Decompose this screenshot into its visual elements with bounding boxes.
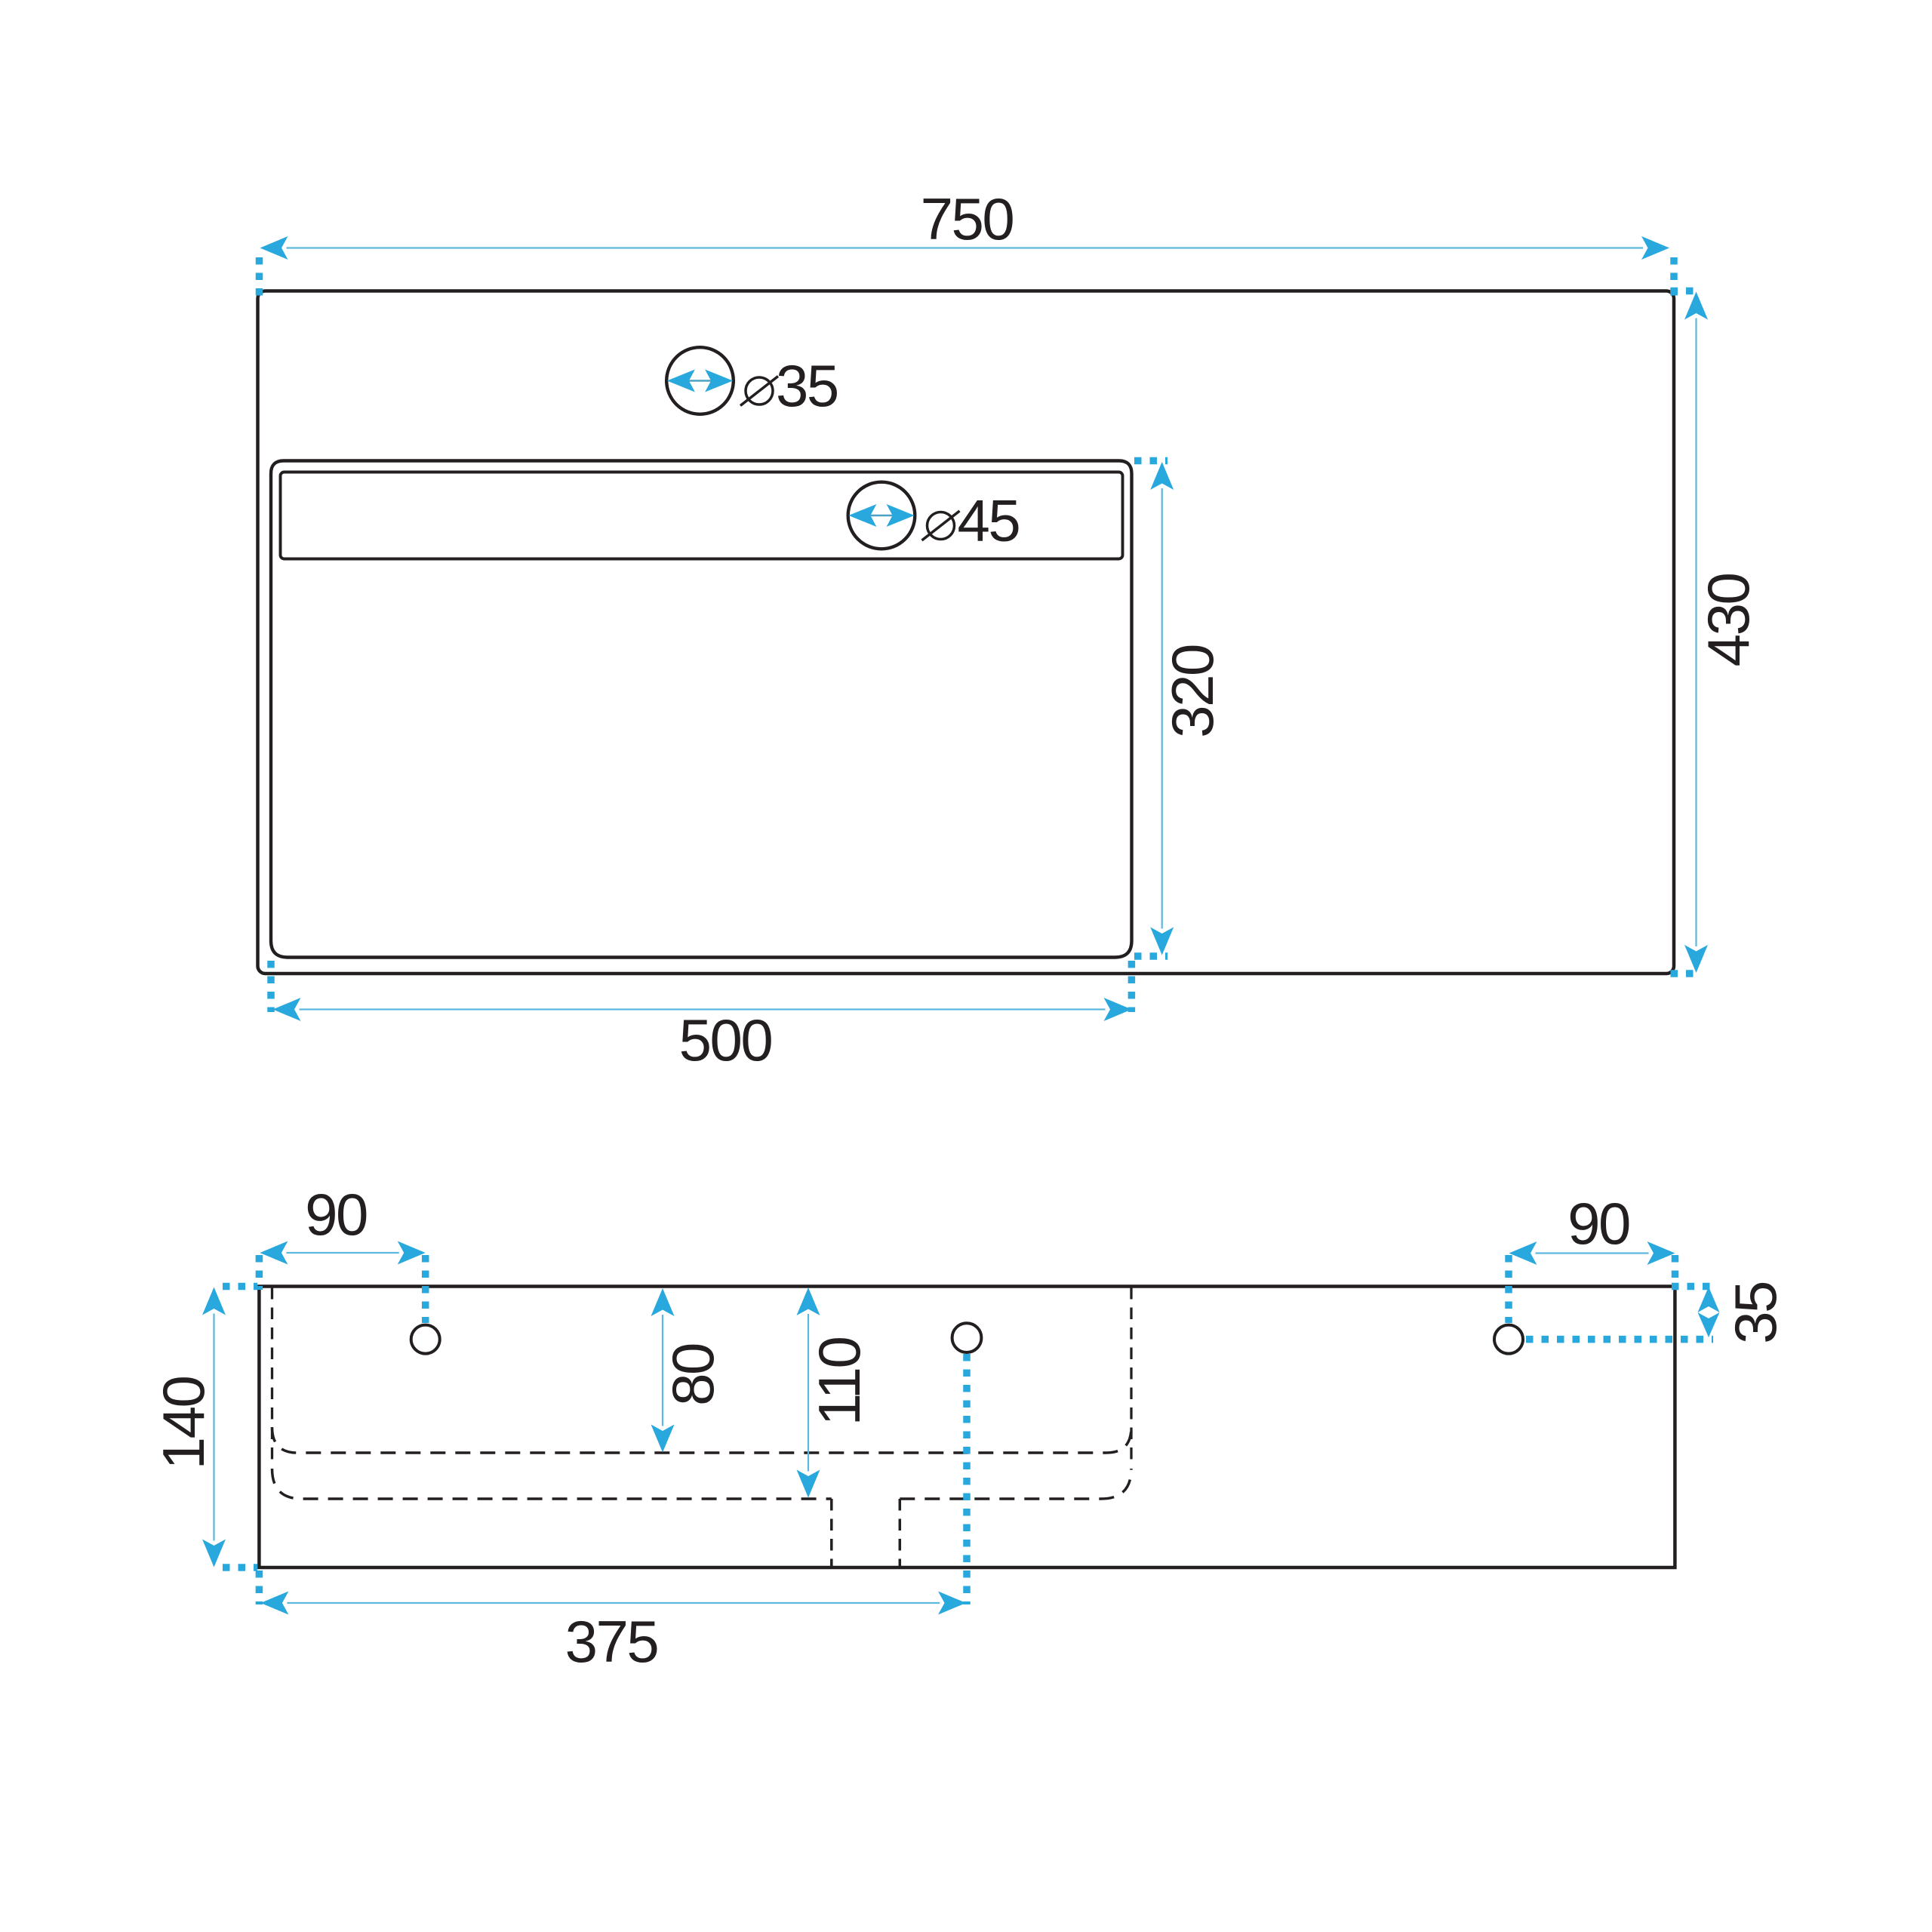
svg-text:90: 90 bbox=[305, 1181, 367, 1247]
svg-text:90: 90 bbox=[1567, 1190, 1629, 1257]
svg-text:45: 45 bbox=[958, 488, 1020, 554]
svg-text:320: 320 bbox=[1159, 645, 1226, 738]
svg-text:140: 140 bbox=[150, 1377, 217, 1470]
svg-text:35: 35 bbox=[1722, 1282, 1789, 1344]
svg-text:500: 500 bbox=[679, 1007, 772, 1073]
svg-text:35: 35 bbox=[776, 352, 838, 419]
svg-text:80: 80 bbox=[660, 1344, 726, 1406]
svg-text:750: 750 bbox=[921, 186, 1014, 252]
svg-text:375: 375 bbox=[565, 1608, 658, 1675]
svg-text:430: 430 bbox=[1695, 574, 1761, 667]
svg-text:110: 110 bbox=[806, 1337, 872, 1426]
